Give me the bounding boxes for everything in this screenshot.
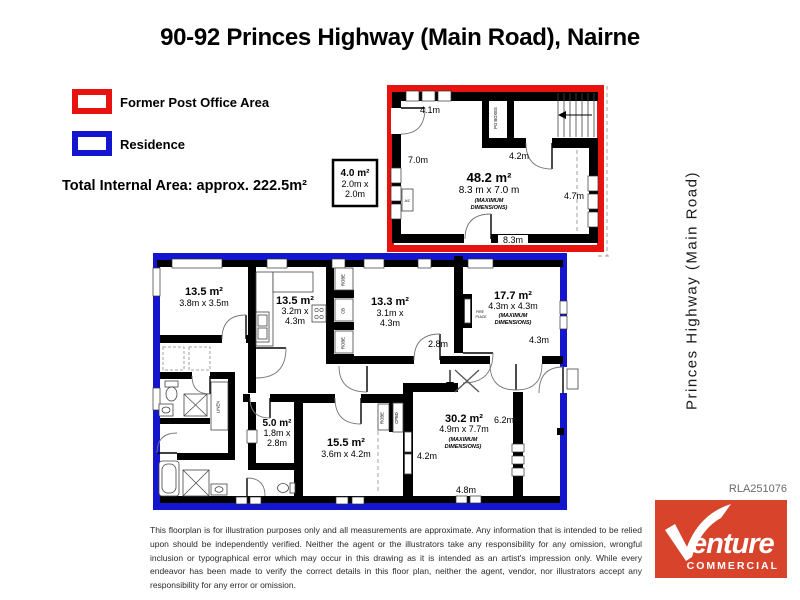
bed3-dims-label: 3.6m x 4.2m (321, 449, 371, 459)
living-dims-label: 4.9m x 7.7m (439, 424, 489, 434)
cb-label: CB (341, 308, 346, 314)
po-dims-label: 8.3 m x 7.0 m (459, 185, 520, 196)
bed3-area-label: 15.5 m² (327, 437, 365, 449)
annex-box: 4.0 m² 2.0m x 2.0m (333, 160, 377, 206)
toilet-icon (165, 381, 178, 401)
residence-area: ROBE CB ROBE ROBE CPBD LINEN FIRE PLACE (153, 256, 578, 507)
po-dim-bottom: 8.3m (503, 235, 523, 245)
robe-label: ROBE (380, 412, 385, 424)
venture-logo: enture COMMERCIAL (655, 500, 787, 578)
bed1-area-label: 13.5 m² (185, 286, 223, 298)
po-dim-right: 4.7m (564, 191, 584, 201)
living-note2: DIMENSIONS) (445, 444, 482, 450)
annex-area-label: 4.0 m² (341, 168, 371, 179)
lounge-note2: DIMENSIONS) (495, 320, 532, 326)
lounge-dim-label: 4.3m (529, 335, 549, 345)
stove-icon (312, 305, 326, 322)
logo-tagline-text: COMMERCIAL (687, 560, 779, 572)
shower-icon (184, 394, 207, 416)
disclaimer-text: This floorplan is for illustration purpo… (150, 524, 642, 593)
fireplace-label1: FIRE (476, 310, 484, 314)
cpbd-label: CPBD (394, 412, 399, 424)
bed2-dims1-label: 3.1m x (376, 308, 404, 318)
robe-label: ROBE (341, 274, 346, 286)
living-note1: (MAXIMUM (449, 437, 478, 443)
toilet-icon (278, 483, 296, 493)
kitchen-dims2-label: 4.3m (285, 316, 305, 326)
fireplace-label2: PLACE (475, 315, 487, 319)
living-right-dim-label: 6.2m (494, 415, 514, 425)
po-dim-left: 7.0m (408, 155, 428, 165)
floorplan-page: 90-92 Princes Highway (Main Road), Nairn… (0, 0, 800, 600)
hall-dim-label: 2.8m (428, 339, 448, 349)
laundry-dims1-label: 1.8m x (263, 428, 291, 438)
vanity-icon (159, 404, 173, 416)
living-bottom-dim-label: 4.8m (456, 485, 476, 495)
rla-number: RLA251076 (687, 483, 787, 495)
living-left-dim-label: 4.2m (417, 451, 437, 461)
bed2-dims2-label: 4.3m (380, 318, 400, 328)
po-area-label: 48.2 m² (467, 170, 512, 185)
vanity-icon (211, 484, 227, 495)
robe-label: ROBE (341, 337, 346, 349)
post-office-area: A/C PO BOXES 48.2 m² 8.3 m x 7.0 m (MAXI… (391, 86, 613, 256)
bathtub-icon (159, 461, 179, 496)
po-note2: DIMENSIONS) (471, 205, 508, 211)
street-label: Princes Highway (Main Road) (684, 171, 701, 411)
kitchen-dims1-label: 3.2m x (281, 306, 309, 316)
annex-dims1-label: 2.0m x (341, 179, 369, 189)
annex-dims2-label: 2.0m (345, 189, 365, 199)
lounge-dims-label: 4.3m x 4.3m (488, 301, 538, 311)
ac-label: A/C (405, 199, 411, 203)
po-note1: (MAXIMUM (475, 198, 504, 204)
po-boxes-label: PO BOXES (493, 107, 498, 129)
lounge-note1: (MAXIMUM (499, 313, 528, 319)
venture-logo-art: enture COMMERCIAL (655, 500, 787, 578)
logo-name-text: enture (691, 528, 775, 560)
po-dim-top: 4.1m (420, 105, 440, 115)
shower-icon (183, 470, 209, 496)
bed2-area-label: 13.3 m² (371, 296, 409, 308)
po-dim-mid: 4.2m (509, 151, 529, 161)
bed1-dims-label: 3.8m x 3.5m (179, 298, 229, 308)
laundry-dims2-label: 2.8m (267, 438, 287, 448)
linen-label: LINEN (216, 401, 221, 413)
